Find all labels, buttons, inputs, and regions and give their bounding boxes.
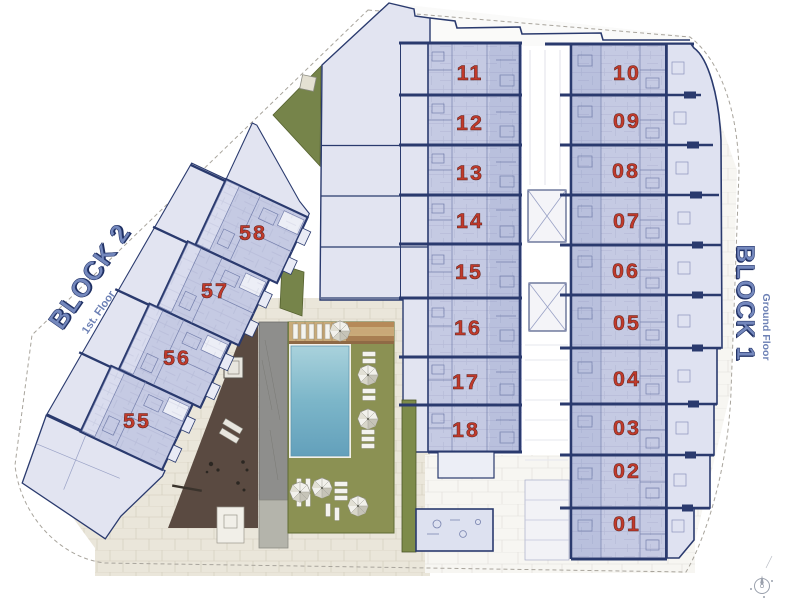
svg-text:BLOCK 1: BLOCK 1 bbox=[731, 245, 759, 362]
svg-text:57: 57 bbox=[201, 279, 229, 303]
svg-text:58: 58 bbox=[239, 221, 267, 245]
svg-text:18: 18 bbox=[452, 418, 480, 442]
svg-text:03: 03 bbox=[613, 416, 641, 440]
svg-text:05: 05 bbox=[613, 311, 641, 335]
svg-text:14: 14 bbox=[456, 209, 484, 233]
svg-text:Ground Floor: Ground Floor bbox=[760, 293, 772, 360]
svg-text:56: 56 bbox=[163, 346, 191, 370]
svg-text:06: 06 bbox=[612, 259, 640, 283]
svg-text:10: 10 bbox=[613, 61, 641, 85]
svg-text:08: 08 bbox=[612, 159, 640, 183]
svg-text:12: 12 bbox=[456, 111, 484, 135]
svg-text:16: 16 bbox=[454, 316, 482, 340]
svg-text:13: 13 bbox=[456, 161, 484, 185]
svg-text:15: 15 bbox=[455, 260, 483, 284]
svg-text:01: 01 bbox=[613, 512, 641, 536]
svg-text:17: 17 bbox=[452, 370, 480, 394]
svg-text:02: 02 bbox=[613, 459, 641, 483]
svg-text:09: 09 bbox=[613, 109, 641, 133]
svg-text:11: 11 bbox=[457, 61, 484, 85]
svg-text:04: 04 bbox=[613, 367, 641, 391]
svg-text:07: 07 bbox=[613, 209, 641, 233]
svg-text:55: 55 bbox=[123, 409, 151, 433]
